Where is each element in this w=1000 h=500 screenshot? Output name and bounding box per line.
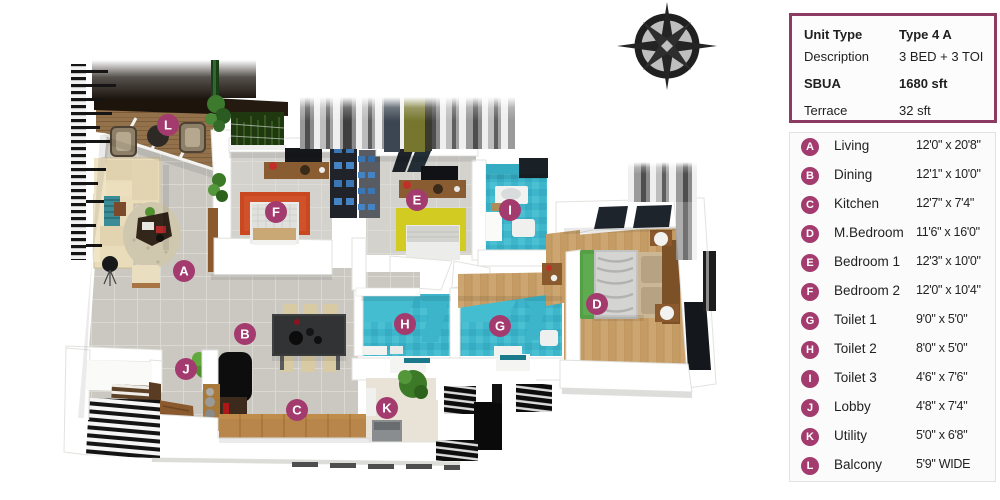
svg-text:K: K	[382, 401, 392, 416]
svg-text:D: D	[592, 297, 601, 312]
svg-text:F: F	[272, 205, 280, 220]
svg-text:I: I	[508, 203, 512, 218]
svg-text:E: E	[413, 193, 422, 208]
svg-text:B: B	[240, 327, 249, 342]
svg-text:H: H	[400, 317, 409, 332]
svg-text:G: G	[495, 319, 505, 334]
svg-text:L: L	[164, 118, 172, 133]
svg-text:C: C	[292, 403, 302, 418]
svg-text:A: A	[179, 264, 189, 279]
svg-text:J: J	[182, 362, 189, 377]
